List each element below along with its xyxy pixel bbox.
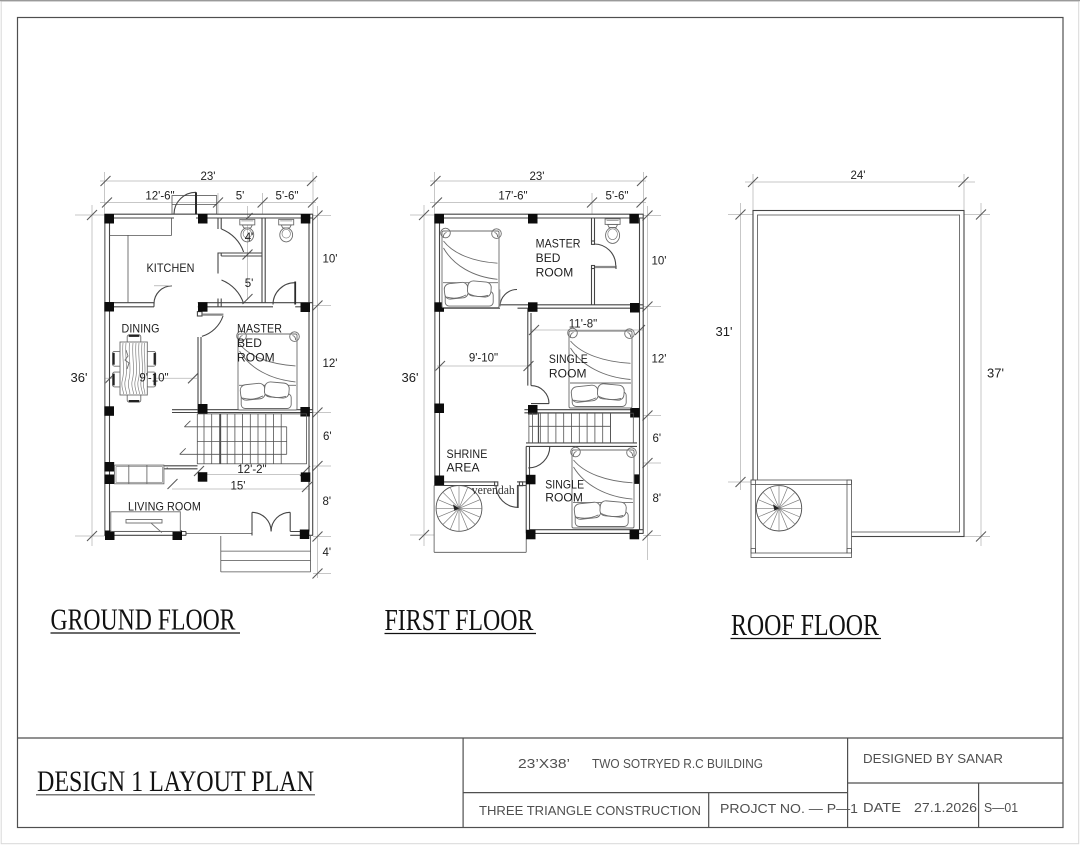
- svg-text:4': 4': [323, 547, 332, 559]
- svg-text:37': 37': [987, 366, 1004, 381]
- svg-text:23': 23': [201, 171, 216, 183]
- svg-text:12': 12': [652, 354, 667, 366]
- svg-text:BED: BED: [536, 251, 561, 265]
- svg-text:5'-6": 5'-6": [276, 191, 299, 203]
- svg-text:ROOM: ROOM: [549, 367, 587, 381]
- svg-text:KITCHEN: KITCHEN: [147, 261, 195, 275]
- svg-text:ROOM: ROOM: [545, 491, 583, 505]
- svg-text:6': 6': [323, 431, 332, 443]
- svg-text:TWO SOTRYED R.C BUILDING: TWO SOTRYED R.C BUILDING: [592, 757, 763, 771]
- svg-text:BED: BED: [237, 336, 262, 350]
- svg-text:S—01: S—01: [984, 801, 1018, 815]
- svg-text:SINGLE: SINGLE: [545, 477, 584, 491]
- svg-text:5': 5': [236, 191, 245, 203]
- svg-text:5': 5': [245, 278, 254, 290]
- svg-text:12'-6": 12'-6": [145, 191, 174, 203]
- svg-text:FIRST FLOOR: FIRST FLOOR: [385, 602, 534, 637]
- svg-text:15': 15': [231, 481, 246, 493]
- svg-text:9'-10": 9'-10": [469, 353, 498, 365]
- svg-text:GROUND FLOOR: GROUND FLOOR: [51, 602, 236, 637]
- svg-text:10': 10': [652, 256, 667, 268]
- svg-text:36': 36': [402, 370, 419, 385]
- svg-text:23': 23': [530, 171, 545, 183]
- svg-text:17'-6": 17'-6": [498, 191, 527, 203]
- svg-text:11'-8": 11'-8": [569, 319, 597, 331]
- svg-text:31': 31': [716, 324, 733, 339]
- svg-text:DESIGN 1 LAYOUT PLAN: DESIGN 1 LAYOUT PLAN: [37, 765, 314, 798]
- svg-text:9'-10": 9'-10": [139, 373, 168, 385]
- svg-text:5'-6": 5'-6": [606, 191, 629, 203]
- svg-text:24': 24': [851, 170, 866, 182]
- svg-text:SINGLE: SINGLE: [549, 352, 588, 366]
- svg-text:4': 4': [245, 232, 254, 244]
- svg-text:ROOM: ROOM: [237, 351, 275, 365]
- svg-text:AREA: AREA: [447, 461, 480, 475]
- svg-text:36': 36': [71, 370, 88, 385]
- svg-text:SHRINE: SHRINE: [447, 447, 488, 461]
- svg-text:ROOM: ROOM: [536, 266, 574, 280]
- svg-text:12'-2": 12'-2": [237, 464, 266, 476]
- svg-text:12': 12': [323, 358, 338, 370]
- svg-text:DATE: DATE: [863, 801, 901, 815]
- svg-text:verendah: verendah: [472, 482, 515, 497]
- svg-text:MASTER: MASTER: [536, 237, 581, 251]
- svg-text:10': 10': [323, 254, 338, 266]
- svg-text:PROJCT NO. — P—1: PROJCT NO. — P—1: [720, 802, 858, 816]
- svg-text:LIVING ROOM: LIVING ROOM: [128, 500, 201, 514]
- svg-text:DINING: DINING: [122, 322, 160, 336]
- svg-text:MASTER: MASTER: [237, 322, 282, 336]
- svg-text:23’X38’: 23’X38’: [518, 757, 570, 771]
- svg-text:8': 8': [653, 493, 662, 505]
- svg-text:27.1.2026: 27.1.2026: [914, 801, 977, 815]
- svg-text:6': 6': [653, 433, 662, 445]
- svg-text:8': 8': [323, 496, 332, 508]
- svg-text:ROOF FLOOR: ROOF FLOOR: [731, 607, 879, 642]
- svg-text:THREE TRIANGLE CONSTRUCTION: THREE TRIANGLE CONSTRUCTION: [479, 804, 701, 818]
- svg-text:DESIGNED BY SANAR: DESIGNED BY SANAR: [863, 752, 1003, 766]
